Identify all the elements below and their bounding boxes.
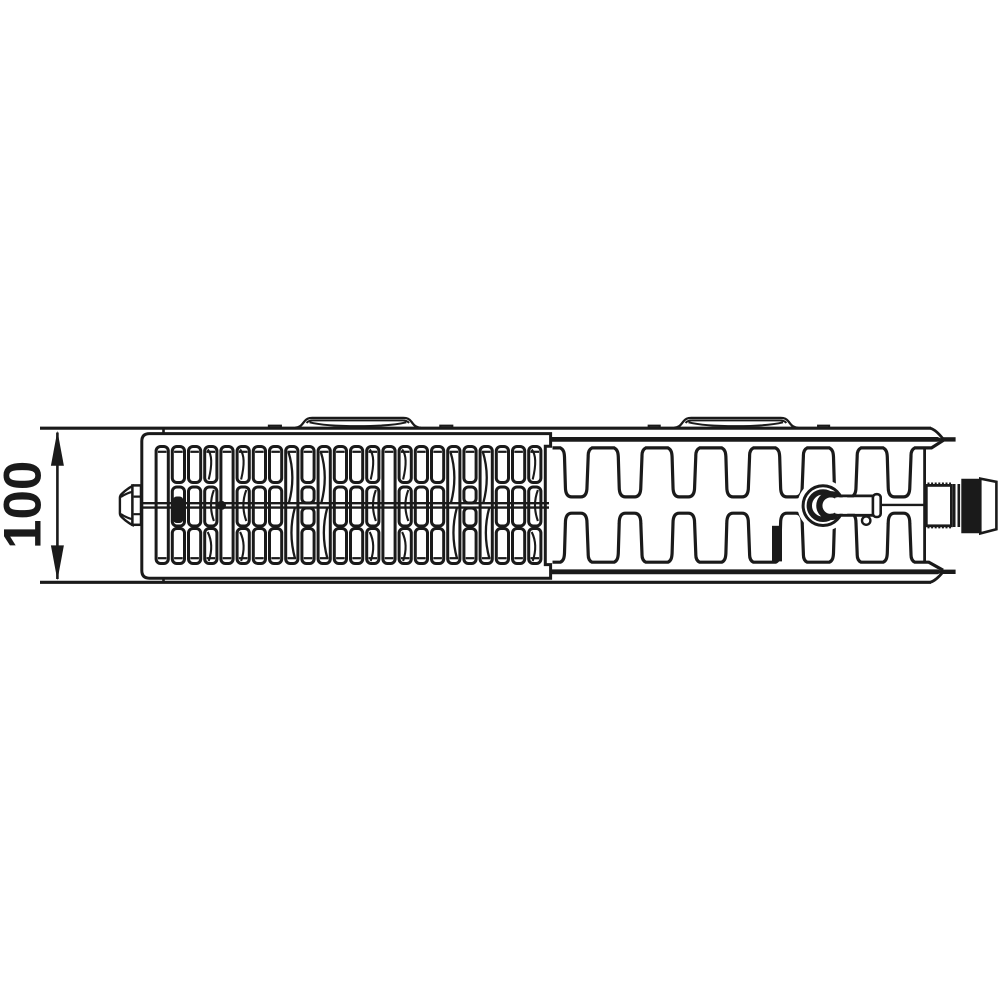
svg-text:100: 100 bbox=[0, 461, 52, 549]
